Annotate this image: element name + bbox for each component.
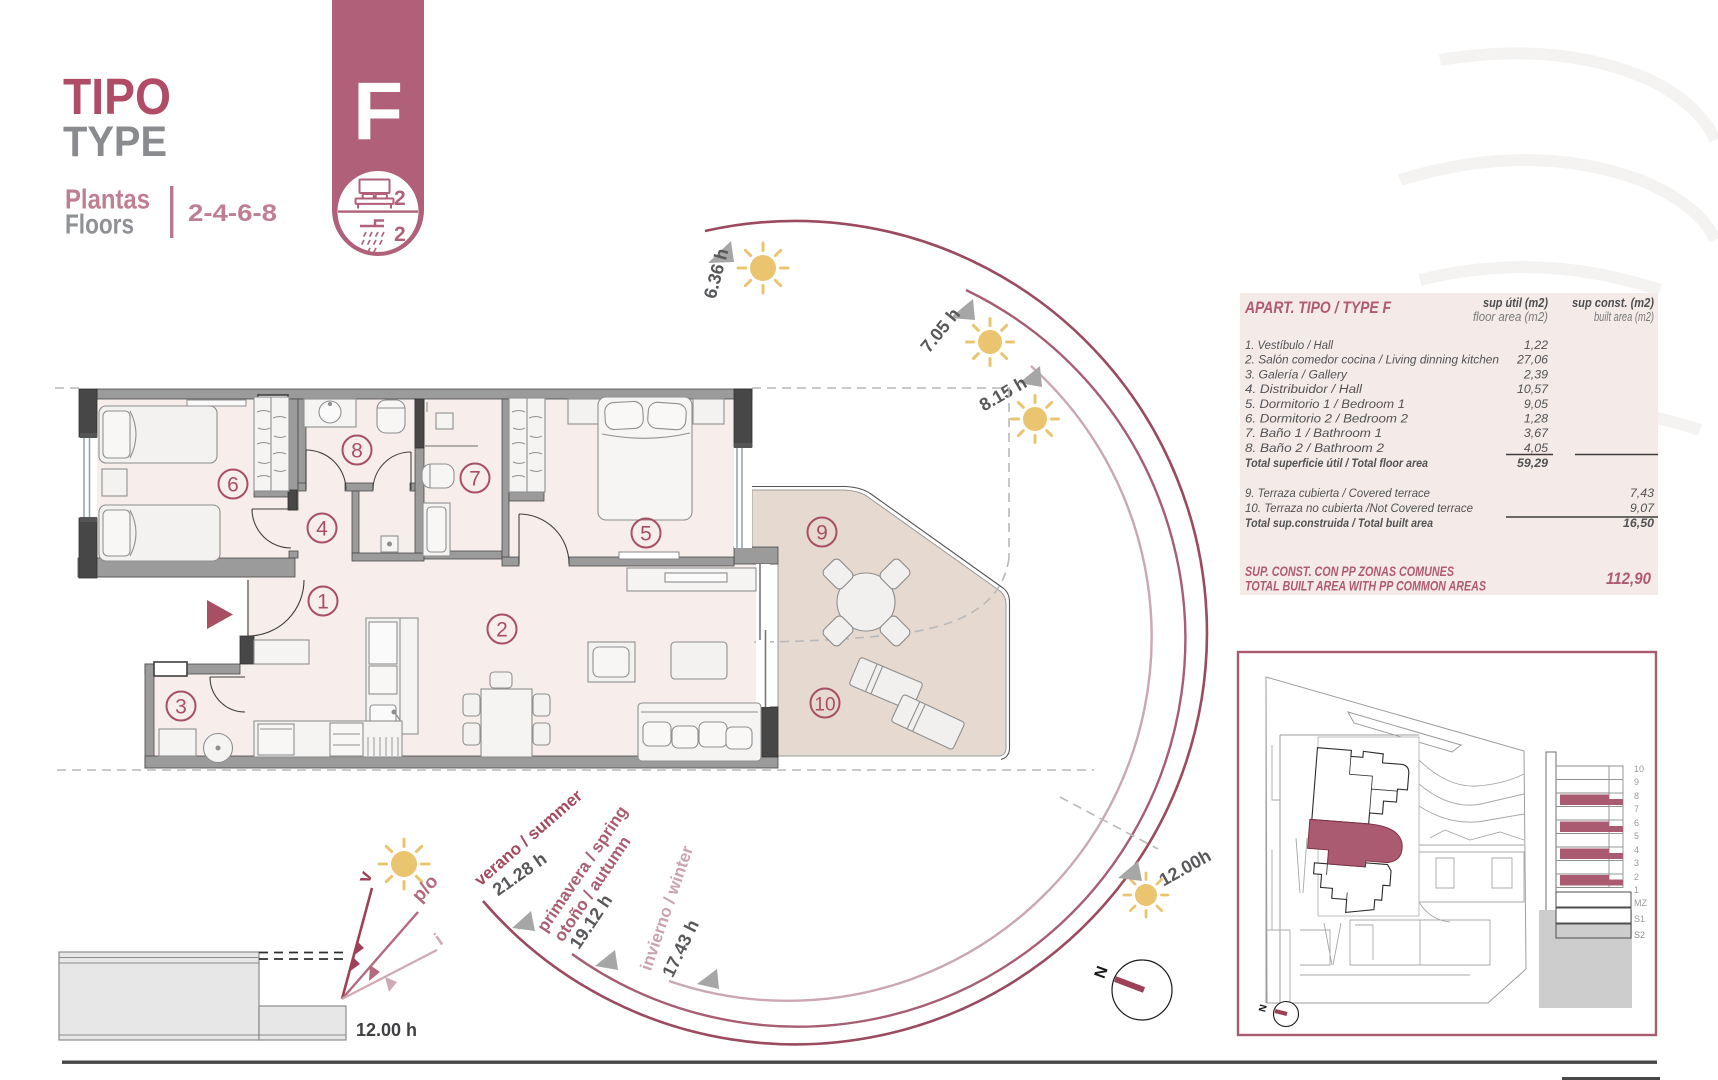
svg-text:SUP. CONST. CON PP ZONAS COMUN: SUP. CONST. CON PP ZONAS COMUNES <box>1245 564 1454 579</box>
svg-text:12.00 h: 12.00 h <box>356 1020 417 1040</box>
svg-text:TOTAL BUILT AREA WITH PP COMMO: TOTAL BUILT AREA WITH PP COMMON AREAS <box>1245 579 1486 594</box>
svg-text:S2: S2 <box>1634 930 1645 940</box>
svg-text:6. Dormitorio 2 / Bedroom 2: 6. Dormitorio 2 / Bedroom 2 <box>1245 412 1408 426</box>
svg-text:7. Baño 1 / Bathroom 1: 7. Baño 1 / Bathroom 1 <box>1245 426 1382 440</box>
svg-text:8: 8 <box>351 440 363 463</box>
svg-text:4: 4 <box>316 518 328 541</box>
svg-text:1: 1 <box>1634 885 1639 895</box>
svg-text:3: 3 <box>1634 858 1639 868</box>
svg-text:9,07: 9,07 <box>1630 501 1655 515</box>
svg-text:F: F <box>353 66 403 157</box>
svg-text:3: 3 <box>175 696 187 719</box>
svg-text:2: 2 <box>1634 872 1639 882</box>
svg-text:16,50: 16,50 <box>1623 516 1654 530</box>
svg-text:S1: S1 <box>1634 914 1645 924</box>
svg-text:7,43: 7,43 <box>1630 486 1654 500</box>
svg-text:2: 2 <box>394 223 406 246</box>
svg-text:4: 4 <box>1634 845 1639 855</box>
svg-text:2-4-6-8: 2-4-6-8 <box>188 200 277 227</box>
svg-text:4,05: 4,05 <box>1524 441 1548 455</box>
svg-text:7: 7 <box>1634 804 1639 814</box>
svg-text:6: 6 <box>227 474 239 497</box>
svg-text:MZ: MZ <box>1634 898 1647 908</box>
svg-text:floor area (m2): floor area (m2) <box>1473 310 1548 324</box>
svg-text:9: 9 <box>816 522 828 545</box>
svg-text:9,05: 9,05 <box>1524 397 1548 411</box>
svg-text:2: 2 <box>394 187 406 210</box>
svg-text:Total sup.construida / Total b: Total sup.construida / Total built area <box>1245 516 1433 530</box>
svg-text:3,67: 3,67 <box>1524 426 1549 440</box>
svg-text:6: 6 <box>1634 818 1639 828</box>
svg-text:59,29: 59,29 <box>1517 456 1548 470</box>
svg-text:10: 10 <box>814 695 835 716</box>
svg-text:8. Baño 2 / Bathroom 2: 8. Baño 2 / Bathroom 2 <box>1245 441 1384 455</box>
svg-text:TYPE: TYPE <box>63 118 167 166</box>
svg-text:2: 2 <box>496 619 508 642</box>
svg-text:10. Terraza no cubierta /Not C: 10. Terraza no cubierta /Not Covered ter… <box>1245 501 1473 515</box>
svg-text:5. Dormitorio 1 / Bedroom 1: 5. Dormitorio 1 / Bedroom 1 <box>1245 397 1405 411</box>
svg-text:1,22: 1,22 <box>1524 338 1548 352</box>
svg-text:Floors: Floors <box>65 209 134 240</box>
svg-text:9. Terraza cubierta / Covered: 9. Terraza cubierta / Covered terrace <box>1245 486 1430 500</box>
svg-text:5: 5 <box>640 523 652 546</box>
svg-text:sup útil (m2): sup útil (m2) <box>1483 296 1548 310</box>
svg-text:APART. TIPO / TYPE F: APART. TIPO / TYPE F <box>1244 298 1391 317</box>
svg-text:4. Distribuidor / Hall: 4. Distribuidor / Hall <box>1245 382 1363 396</box>
svg-text:112,90: 112,90 <box>1606 570 1652 588</box>
svg-text:Total superficie útil / Total: Total superficie útil / Total floor area <box>1245 456 1428 470</box>
svg-text:8: 8 <box>1634 791 1639 801</box>
svg-text:1,28: 1,28 <box>1524 412 1548 426</box>
svg-text:10: 10 <box>1634 764 1644 774</box>
svg-text:1. Vestíbulo / Hall: 1. Vestíbulo / Hall <box>1245 338 1334 352</box>
svg-text:1: 1 <box>317 591 329 614</box>
svg-text:built area (m2): built area (m2) <box>1594 310 1654 324</box>
svg-text:9: 9 <box>1634 777 1639 787</box>
svg-text:sup const. (m2): sup const. (m2) <box>1572 296 1654 310</box>
svg-text:27,06: 27,06 <box>1516 353 1548 367</box>
svg-text:10,57: 10,57 <box>1517 382 1549 396</box>
svg-text:5: 5 <box>1634 831 1639 841</box>
svg-text:2. Salón comedor cocina / Livi: 2. Salón comedor cocina / Living dinning… <box>1244 353 1499 367</box>
svg-text:3. Galería / Gallery: 3. Galería / Gallery <box>1245 367 1348 381</box>
svg-text:7: 7 <box>469 468 481 491</box>
svg-text:2,39: 2,39 <box>1523 367 1548 381</box>
svg-text:TIPO: TIPO <box>63 68 171 125</box>
